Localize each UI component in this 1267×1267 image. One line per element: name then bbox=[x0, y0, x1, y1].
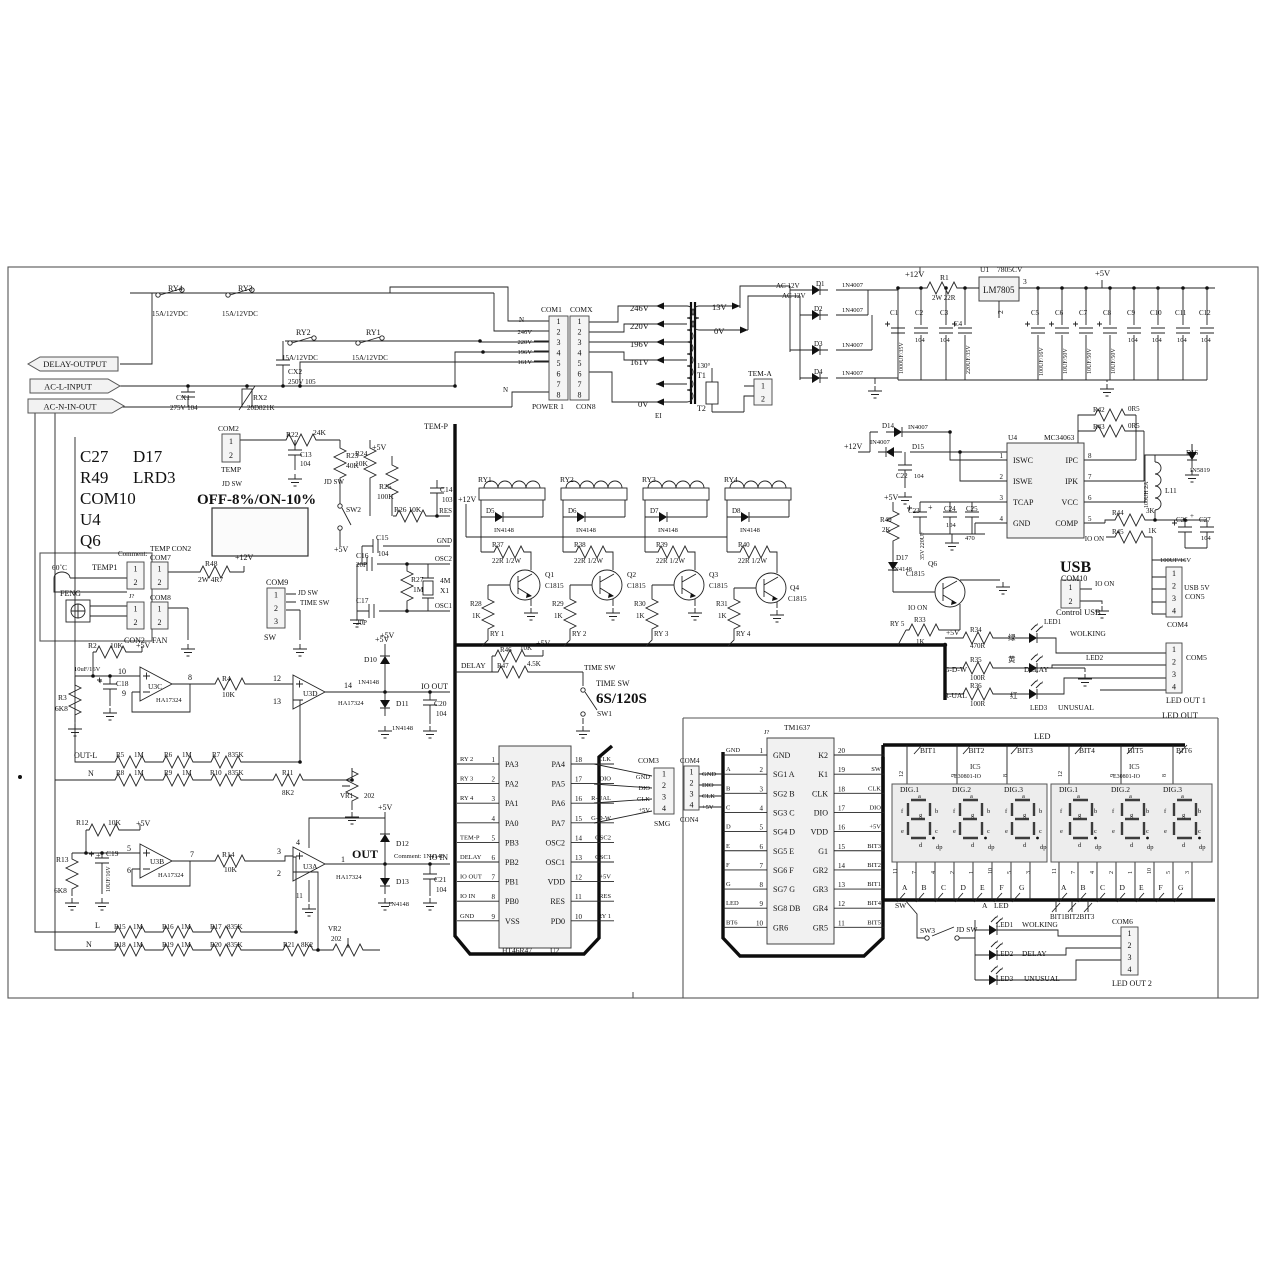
schematic-label: 100UF/16V bbox=[1039, 347, 1045, 376]
connector-pin: 2 bbox=[1172, 582, 1176, 591]
schematic-label: 10uF/16V bbox=[74, 666, 101, 673]
schematic-label: +5V bbox=[638, 807, 650, 814]
schematic-label: 1N4007 bbox=[842, 307, 864, 314]
schematic-label: COM2 bbox=[218, 424, 239, 433]
schematic-label: 3 bbox=[1023, 277, 1027, 286]
hysteresis-box bbox=[212, 508, 308, 556]
schematic-label: C25 bbox=[966, 505, 978, 513]
ic-pin-name: IPC bbox=[1066, 456, 1078, 465]
schematic-label: 104 bbox=[915, 337, 926, 344]
ic-pin-number: 1 bbox=[492, 756, 496, 764]
segment-letter: dp bbox=[936, 844, 943, 851]
connector-pin: 3 bbox=[662, 793, 666, 802]
ic-pin-name: COMP bbox=[1055, 519, 1078, 528]
schematic-label: RY 2 bbox=[572, 630, 587, 638]
schematic-label: 104 bbox=[1152, 337, 1163, 344]
display-pin: 7 bbox=[912, 871, 918, 874]
connector-pin: 4 bbox=[578, 349, 582, 358]
schematic-label: C26 bbox=[1176, 516, 1188, 524]
ic-pin-net: DIO bbox=[599, 776, 611, 783]
schematic-label: LED2 bbox=[996, 950, 1014, 958]
schematic-label: SW2 bbox=[346, 505, 361, 514]
schematic-label: R24 bbox=[355, 449, 368, 458]
schematic-label: C1815 bbox=[788, 595, 807, 603]
schematic-label: 196V bbox=[630, 339, 650, 349]
connector-pin: 1 bbox=[158, 565, 162, 574]
schematic-label: 2W 4R7 bbox=[198, 575, 223, 584]
schematic-label: +5V bbox=[372, 443, 387, 452]
schematic-label: 202 bbox=[364, 792, 375, 800]
schematic-label: 10UF/50V bbox=[1063, 348, 1069, 374]
schematic-label: + bbox=[96, 851, 101, 860]
schematic-label: 1N4148 bbox=[392, 725, 413, 732]
schematic-label: +5V bbox=[136, 641, 151, 650]
schematic-label: C24 bbox=[944, 505, 956, 513]
schematic-label: 1M bbox=[413, 585, 424, 594]
segment-net-label: G bbox=[1019, 883, 1025, 892]
ic-pin-name: SG5 E bbox=[773, 847, 794, 856]
schematic-label: DIO bbox=[638, 785, 650, 792]
schematic-label: N bbox=[503, 386, 508, 394]
schematic-label: CLK bbox=[637, 796, 650, 803]
schematic-label: +5V bbox=[1095, 268, 1111, 278]
schematic-label: C6 bbox=[1055, 309, 1064, 317]
ic-pin-number: 7 bbox=[1088, 473, 1092, 481]
ic-pin-name: VDD bbox=[811, 828, 829, 837]
connector-pin: 1 bbox=[1172, 569, 1176, 578]
ic-pin-net: BIT1 bbox=[867, 881, 881, 888]
connector-pin: 1 bbox=[229, 437, 233, 446]
flag-delay-output-label: DELAY-OUTPUT bbox=[43, 359, 107, 369]
schematic-label: R20 bbox=[210, 941, 222, 949]
schematic-label: 绿 bbox=[1008, 633, 1016, 642]
schematic-label: +5V bbox=[334, 545, 349, 554]
switch bbox=[338, 504, 342, 508]
segment-letter: dp bbox=[988, 844, 995, 851]
schematic-label: COM4 bbox=[1167, 620, 1188, 629]
segment-letter: a bbox=[1077, 793, 1080, 800]
schematic-label: 15A/12VDC bbox=[222, 310, 258, 318]
ic-pin-number: 10 bbox=[575, 913, 583, 921]
schematic-label: IN4007 bbox=[870, 439, 891, 446]
connector-com2: 12 bbox=[222, 434, 240, 462]
digit-label: DIG.3 bbox=[1004, 785, 1023, 794]
schematic-label: RY4 bbox=[168, 284, 183, 293]
schematic-label: TEMP bbox=[221, 465, 241, 474]
segment-letter: a bbox=[970, 793, 973, 800]
schematic-label: + bbox=[98, 677, 103, 686]
inductor bbox=[1155, 462, 1161, 510]
ic-pin-name: SG7 G bbox=[773, 885, 795, 894]
schematic-label: 1N4007 bbox=[842, 370, 864, 377]
schematic-label: COMX bbox=[570, 305, 593, 314]
connector-pin: 2 bbox=[134, 618, 138, 627]
ic-pin-number: 8 bbox=[492, 893, 496, 901]
segment-net-label: B bbox=[922, 883, 927, 892]
schematic-label: LED2 bbox=[1086, 654, 1104, 662]
schematic-label: 161V bbox=[518, 359, 533, 366]
ic-pin-name: PA2 bbox=[505, 780, 519, 789]
schematic-label: U2 bbox=[550, 946, 559, 955]
schematic-label: U3C bbox=[148, 682, 162, 691]
schematic-label: SW bbox=[264, 633, 276, 642]
ic-pin-number: 16 bbox=[575, 795, 583, 803]
display-ic-ref: IC5 bbox=[970, 763, 981, 771]
schematic-label: 104 bbox=[940, 337, 951, 344]
display-pin: 11 bbox=[1052, 868, 1058, 874]
schematic-label: Control USB bbox=[1056, 607, 1101, 617]
schematic-label: 250V 105 bbox=[288, 378, 316, 386]
segment-letter: a bbox=[1129, 793, 1132, 800]
schematic-label: JD SW bbox=[956, 925, 978, 934]
schematic-label: Q2 bbox=[627, 570, 636, 579]
schematic-label: CON8 bbox=[576, 402, 596, 411]
schematic-label: 20P bbox=[356, 619, 367, 627]
schematic-label: R48 bbox=[205, 559, 218, 568]
flag-ac-l-input-label: AC-L-INPUT bbox=[44, 382, 92, 392]
segment-letter: a bbox=[1022, 793, 1025, 800]
schematic-label: COM5 bbox=[1186, 653, 1207, 662]
schematic-label: R10 bbox=[210, 769, 222, 777]
ic-pin-number: 7 bbox=[760, 862, 764, 870]
display-pin: 9 bbox=[951, 774, 957, 777]
connector-pin: 3 bbox=[274, 617, 278, 626]
schematic-label: U3D bbox=[303, 689, 318, 698]
connector-pin: 5 bbox=[578, 359, 582, 368]
schematic-label: LED bbox=[994, 901, 1009, 910]
ic-pin-name: ISWC bbox=[1013, 456, 1033, 465]
schematic-label: R49 bbox=[80, 468, 108, 487]
connector-tem-a: 12 bbox=[754, 379, 772, 405]
segment-net-label: F bbox=[1159, 883, 1163, 892]
ic-pin-name: PD0 bbox=[551, 917, 565, 926]
schematic-label: D5 bbox=[486, 507, 495, 515]
schematic-label: R45 bbox=[1112, 528, 1124, 536]
schematic-label: OUT bbox=[352, 847, 378, 861]
ic-pin-number: 13 bbox=[575, 854, 583, 862]
schematic-label: LED1 bbox=[996, 921, 1014, 929]
schematic-label: D10 bbox=[364, 655, 377, 664]
schematic-label: AC 12V bbox=[782, 292, 806, 300]
schematic-label: Q6 bbox=[80, 531, 101, 550]
schematic-label: 1M bbox=[133, 941, 144, 949]
schematic-label: R22 bbox=[286, 430, 299, 439]
ic-pin-name: VDD bbox=[548, 878, 566, 887]
schematic-label: R7 bbox=[212, 751, 221, 759]
schematic-label: 1K bbox=[554, 612, 563, 620]
schematic-label: VR2 bbox=[328, 925, 342, 933]
schematic-label: IO IN bbox=[429, 853, 448, 862]
schematic-label: AC 12V bbox=[776, 282, 800, 290]
schematic-label: SMG bbox=[654, 819, 671, 828]
schematic-label: +5V bbox=[946, 628, 960, 637]
schematic-label: 1M bbox=[134, 751, 145, 759]
ic-pin-name: PB3 bbox=[505, 838, 519, 847]
connector-com3-smg: 1234 bbox=[654, 768, 674, 814]
schematic-label: 220UF/35V bbox=[966, 345, 972, 374]
ic-pin-number: 18 bbox=[575, 756, 583, 764]
digit-label: DIG.2 bbox=[1111, 785, 1130, 794]
schematic-label: RY2 bbox=[560, 475, 574, 484]
bit-net-label: BIT5 bbox=[1128, 746, 1144, 755]
connector-pin: 2 bbox=[662, 781, 666, 790]
connector-pin: 4 bbox=[557, 349, 561, 358]
schematic-label: R27 bbox=[411, 575, 424, 584]
schematic-label: + bbox=[1190, 512, 1194, 520]
ic-pin-name: VSS bbox=[505, 917, 520, 926]
schematic-label: TEM-A bbox=[748, 369, 772, 378]
schematic-label: C8 bbox=[1103, 309, 1112, 317]
segment-letter: dp bbox=[1199, 844, 1206, 851]
schematic-label: LM7805 bbox=[983, 285, 1015, 295]
schematic-label: G-D-W bbox=[944, 665, 968, 674]
segment-letter: b bbox=[987, 808, 990, 815]
display-pin: 4 bbox=[1090, 871, 1096, 874]
schematic-label: R1 bbox=[940, 273, 949, 282]
schematic-label: IO ON bbox=[908, 604, 927, 612]
ic-pin-name: TCAP bbox=[1013, 498, 1034, 507]
schematic-label: + bbox=[928, 503, 933, 512]
digit-label: DIG.1 bbox=[1059, 785, 1078, 794]
display-ic-part: E30801-IO bbox=[954, 774, 982, 780]
ic-pin-number: 12 bbox=[575, 874, 583, 882]
display-pin: 8 bbox=[1003, 774, 1009, 777]
schematic-label: 6K8 bbox=[54, 886, 67, 895]
ic-pin-name: OSC2 bbox=[545, 838, 565, 847]
connector-pin: 1 bbox=[761, 381, 765, 390]
schematic-label: OSC1 bbox=[435, 602, 453, 610]
ic-pin-name: PA4 bbox=[552, 760, 566, 769]
segment-letter: b bbox=[1198, 808, 1201, 815]
schematic-label: R35 bbox=[970, 656, 982, 664]
schematic-label: 1N4007 bbox=[842, 282, 864, 289]
connector-pin: 1 bbox=[158, 605, 162, 614]
ic-pin-number: 10 bbox=[756, 919, 764, 927]
schematic-label: 6S/120S bbox=[596, 691, 647, 707]
ic-pin-number: 20 bbox=[838, 747, 846, 755]
schematic-label: R-UAL bbox=[944, 691, 967, 700]
schematic-label: 835K bbox=[228, 751, 244, 759]
schematic-label: R12 bbox=[76, 818, 89, 827]
schematic-label: C19 bbox=[106, 849, 119, 858]
schematic-label: R4 bbox=[222, 674, 231, 683]
schematic-label: SW bbox=[895, 901, 907, 910]
schematic-label: UNUSUAL bbox=[1024, 974, 1060, 983]
schematic-label: RY3 bbox=[238, 284, 253, 293]
schematic-label: RES bbox=[439, 507, 452, 515]
schematic-label: 10UF/50V bbox=[1087, 348, 1093, 374]
connector-pin: 3 bbox=[557, 338, 561, 347]
schematic-label: 8 bbox=[188, 673, 192, 682]
segment-net-label: A bbox=[1061, 883, 1067, 892]
ic-pin-number: 13 bbox=[838, 881, 846, 889]
schematic-label: 100UF/16V bbox=[1160, 557, 1191, 564]
connector-pin: 5 bbox=[557, 359, 561, 368]
schematic-label: R25 bbox=[379, 482, 392, 491]
schematic-label: RY4 bbox=[724, 475, 738, 484]
schematic-label: LRD3 bbox=[133, 468, 176, 487]
segment-letter: dp bbox=[1095, 844, 1102, 851]
schematic-label: COM9 bbox=[266, 578, 288, 587]
schematic-label: 1N4148 bbox=[388, 901, 409, 908]
schematic-label: POWER 1 bbox=[532, 402, 564, 411]
schematic-label: 1N4007 bbox=[842, 342, 864, 349]
schematic-label: C1815 bbox=[709, 582, 728, 590]
schematic-label: 10UF/50V bbox=[1111, 348, 1117, 374]
ic-pin-name: PA7 bbox=[552, 819, 566, 828]
schematic-label: 835K bbox=[228, 769, 244, 777]
schematic-label: C13 bbox=[300, 451, 312, 459]
segment-letter: e bbox=[901, 828, 904, 835]
display-pin: 3 bbox=[1026, 871, 1032, 874]
connector-pin: 1 bbox=[690, 767, 694, 776]
schematic-label: JD SW bbox=[324, 478, 344, 486]
schematic-label: RX2 bbox=[253, 393, 267, 402]
ic-pin-net: +5V bbox=[599, 874, 611, 881]
connector-pin: 1 bbox=[134, 565, 138, 574]
schematic-label: Q3 bbox=[709, 570, 718, 579]
schematic-label: VR1 bbox=[340, 792, 354, 800]
schematic-label: 10K bbox=[520, 644, 532, 652]
ic-pin-name: SG8 DB bbox=[773, 904, 800, 913]
ic-pin-net: A bbox=[726, 766, 731, 773]
connector-pin: 2 bbox=[557, 328, 561, 337]
schematic-label: 8K2 bbox=[282, 789, 295, 797]
schematic-label: C9 bbox=[1127, 309, 1136, 317]
schematic-label: D15 bbox=[912, 443, 925, 451]
ic-pin-name: PA1 bbox=[505, 799, 519, 808]
schematic-label: COM1 bbox=[541, 305, 562, 314]
schematic-label: OFF-8%/ON-10% bbox=[197, 492, 316, 508]
connector-pin: 2 bbox=[1172, 658, 1176, 667]
schematic-label: L bbox=[95, 921, 100, 930]
ic-pin-number: 4 bbox=[492, 815, 496, 823]
schematic-label: R13 bbox=[56, 855, 69, 864]
schematic-label: D6 bbox=[568, 507, 577, 515]
schematic-label: R14 bbox=[222, 850, 235, 859]
schematic-label: 24K bbox=[313, 428, 327, 437]
schematic-label: +12V bbox=[458, 495, 477, 504]
ic-pin-name: PB0 bbox=[505, 897, 519, 906]
ic-pin-net: DIO bbox=[869, 804, 881, 811]
schematic-label: LED OUT bbox=[1162, 710, 1199, 720]
schematic-label: FENG bbox=[60, 589, 81, 598]
schematic-label: COM4 bbox=[680, 757, 700, 765]
schematic-label: RY 1 bbox=[490, 630, 505, 638]
display-pin: 12 bbox=[1058, 771, 1064, 777]
ic-pin-name: GR5 bbox=[813, 923, 828, 932]
ic-pin-net: CLK bbox=[598, 756, 611, 763]
segment-letter: e bbox=[1164, 828, 1167, 835]
display-pin: 3 bbox=[1185, 871, 1191, 874]
schematic-label: 0R5 bbox=[1128, 422, 1140, 430]
connector-com4-con5: 1234 bbox=[1166, 567, 1182, 617]
ic-pin-name: PB1 bbox=[505, 878, 519, 887]
schematic-label: C4 bbox=[954, 320, 963, 328]
schematic-label: 15A/12VDC bbox=[352, 354, 388, 362]
schematic-label: C16 bbox=[356, 551, 369, 560]
schematic-label: 104 bbox=[378, 550, 389, 558]
connector-pin: 2 bbox=[761, 394, 765, 403]
connector-pin: 7 bbox=[557, 380, 561, 389]
ic-pin-net: BIT2 bbox=[867, 862, 881, 869]
display-pin: 4 bbox=[931, 871, 937, 874]
schematic-label: R15 bbox=[114, 923, 126, 931]
ic-pin-number: 19 bbox=[838, 766, 846, 774]
schematic-label: R5 bbox=[116, 751, 125, 759]
segment-net-label: C bbox=[1100, 883, 1105, 892]
schematic-label: N bbox=[88, 769, 94, 778]
schematic-label: 1M bbox=[182, 751, 193, 759]
ic-pin-number: 5 bbox=[492, 834, 496, 842]
schematic-label: J? bbox=[129, 593, 135, 600]
thermostat bbox=[54, 572, 70, 578]
schematic-label: 7805CV bbox=[997, 265, 1023, 274]
schematic-label: 202 bbox=[331, 935, 342, 943]
schematic-label: 100R bbox=[970, 700, 986, 708]
schematic-label: COM8 bbox=[150, 593, 171, 602]
ic-pin-net: RY 4 bbox=[460, 795, 474, 802]
schematic-label: C7 bbox=[1079, 309, 1088, 317]
schematic-label: 10K bbox=[222, 690, 236, 699]
schematic-label: 835K bbox=[227, 941, 243, 949]
connector-com4-con4: 1234 bbox=[684, 766, 699, 810]
ic-pin-net: CLK bbox=[868, 785, 881, 792]
ic-pin-name: DIO bbox=[814, 808, 828, 817]
schematic-label: RY2 bbox=[296, 328, 311, 337]
schematic-label: R43 bbox=[1093, 423, 1105, 431]
schematic-label: C5 bbox=[1031, 309, 1040, 317]
schematic-label: LED OUT 1 bbox=[1166, 696, 1206, 705]
connector-pin: 2 bbox=[134, 578, 138, 587]
ic-pin-number: 9 bbox=[492, 913, 496, 921]
schematic-label: 2K bbox=[882, 526, 891, 534]
schematic-label: RY 4 bbox=[736, 630, 751, 638]
schematic-label: R11 bbox=[282, 769, 294, 777]
ic-pin-name: GND bbox=[1013, 519, 1031, 528]
connector-pin: 2 bbox=[690, 778, 694, 787]
schematic-label: RY 3 bbox=[654, 630, 669, 638]
schematic-label: C2 bbox=[915, 309, 924, 317]
ic-pin-number: 8 bbox=[760, 881, 764, 889]
ic-pin-number: 12 bbox=[838, 900, 846, 908]
schematic-label: 10K bbox=[224, 865, 238, 874]
digit-label: DIG.1 bbox=[900, 785, 919, 794]
schematic-label: +5V bbox=[136, 819, 151, 828]
schematic-label: C12 bbox=[1199, 309, 1211, 317]
schematic-label: D13 bbox=[396, 877, 409, 886]
ic-pin-net: D bbox=[726, 824, 731, 831]
schematic-label: 1K bbox=[1148, 527, 1157, 535]
schematic-label: CON5 bbox=[1185, 592, 1205, 601]
ic-pin-number: 15 bbox=[575, 815, 583, 823]
connector-pin: 8 bbox=[557, 391, 561, 400]
bit-net-label: BIT4 bbox=[1079, 746, 1095, 755]
ic-pin-net: GND bbox=[726, 747, 740, 754]
schematic-label: C3 bbox=[940, 309, 949, 317]
schematic-label: C18 bbox=[116, 679, 129, 688]
connector-pin: 6 bbox=[557, 370, 561, 379]
connector-pin: 4 bbox=[1172, 607, 1176, 616]
schematic-label: D8 bbox=[732, 507, 741, 515]
ic-pin-number: 6 bbox=[492, 854, 496, 862]
display-pin: 7 bbox=[1071, 871, 1077, 874]
schematic-label: TIME SW bbox=[584, 663, 616, 672]
components bbox=[54, 282, 1214, 985]
schematic-label: 22R 1/2W bbox=[656, 557, 685, 565]
ic-tm1637: 1GNDGND2SG1 AA3SG2 BB4SG3 CC5SG4 DD6SG5 … bbox=[723, 738, 884, 944]
segment-net-label: D bbox=[961, 883, 967, 892]
